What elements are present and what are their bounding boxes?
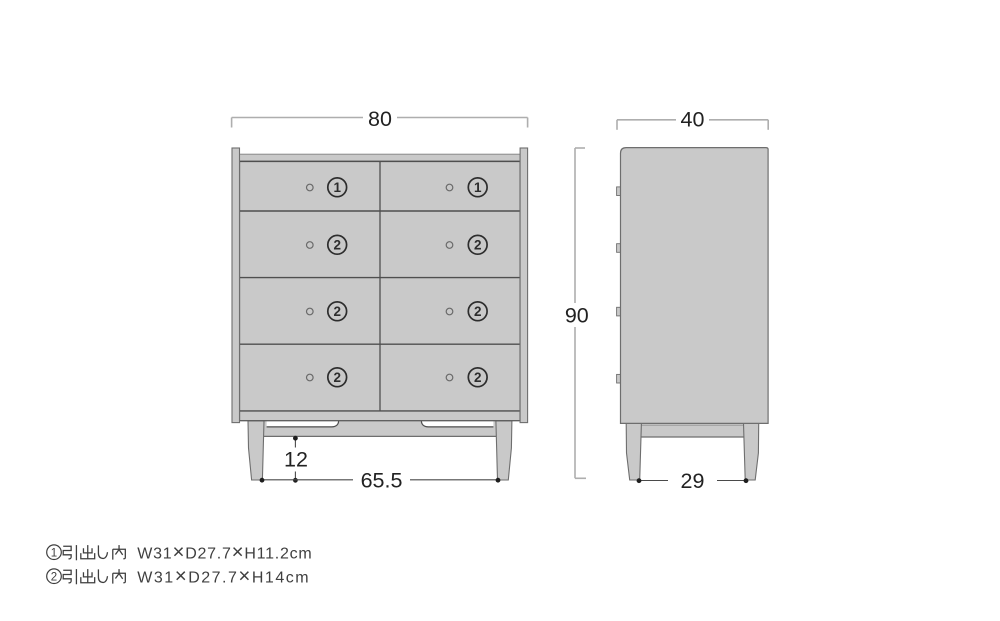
svg-text:2: 2 [474, 238, 482, 253]
svg-text:65.5: 65.5 [361, 469, 403, 493]
svg-text:1: 1 [474, 180, 482, 195]
svg-text:1: 1 [333, 180, 341, 195]
svg-text:2: 2 [333, 238, 341, 253]
svg-text:80: 80 [368, 107, 392, 131]
svg-text:2: 2 [474, 370, 482, 385]
svg-text:90: 90 [565, 304, 589, 328]
svg-text:2: 2 [333, 304, 341, 319]
svg-text:2: 2 [474, 304, 482, 319]
svg-text:W31×D27.7×H11.2cm: W31×D27.7×H11.2cm [137, 540, 312, 563]
svg-text:40: 40 [681, 107, 705, 131]
svg-text:12: 12 [284, 448, 308, 472]
svg-text:2: 2 [333, 370, 341, 385]
svg-text:29: 29 [681, 469, 705, 493]
svg-text:W31×D27.7×H14cm: W31×D27.7×H14cm [137, 564, 310, 587]
svg-text:1: 1 [51, 548, 57, 560]
svg-text:2: 2 [51, 572, 57, 584]
